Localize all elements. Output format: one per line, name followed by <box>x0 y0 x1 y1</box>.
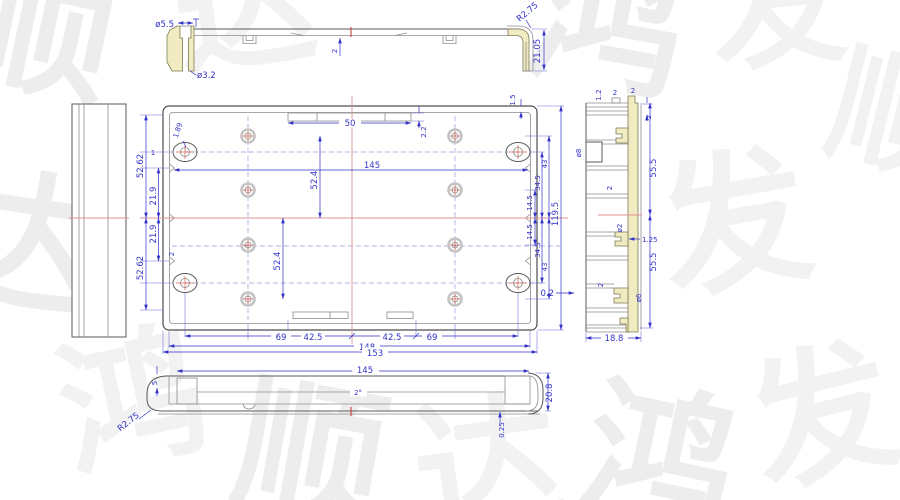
dim-42-5-right: 42.5 <box>383 333 402 343</box>
dim-r2-75-bottom: R2.75 <box>116 411 142 434</box>
right-section-view: 1.2 2 2 2 ø8 2 55.5 ø2 1.25 55.5 2 ø6 18… <box>575 87 659 344</box>
dim-34-5-upper: 34.5 <box>534 175 542 191</box>
dim-tab-2c: 2 <box>645 115 653 119</box>
dim-52-62-lower: 52.62 <box>136 256 146 280</box>
boss-hole <box>449 293 462 306</box>
dim-21-9-lower: 21.9 <box>149 225 159 244</box>
dim-69-left: 69 <box>276 333 287 343</box>
cad-drawing: ø5.5 ø3.2 2 R2.75 21.05 <box>0 0 900 500</box>
boss-hole <box>449 184 462 197</box>
dim-43-lower: 43 <box>541 263 549 272</box>
dim-18-8: 18.8 <box>605 334 624 344</box>
dim-bottom-145: 145 <box>357 366 373 376</box>
main-plan-view: 50 2.2 1.5 145 52.4 52.4 52.62 52.62 21.… <box>136 94 574 359</box>
corner-hole <box>173 274 197 293</box>
dim-119-5: 119.5 <box>551 202 561 226</box>
dim-offset-1: 1 <box>151 149 155 157</box>
boss-hole <box>242 184 255 197</box>
dim-r2-75-top: R2.75 <box>515 1 540 25</box>
dim-phi2: ø2 <box>616 224 624 233</box>
dim-0-2: 0.2 <box>540 289 554 299</box>
dim-phi8: ø8 <box>575 149 583 158</box>
dim-43-upper: 43 <box>541 160 549 169</box>
dim-1-89: 1.89 <box>172 122 184 139</box>
dim-notch-2: 2 <box>168 252 176 256</box>
dim-phi5-5: ø5.5 <box>155 20 174 30</box>
dim-tab-2a: 2 <box>613 89 617 97</box>
dim-52-62-upper: 52.62 <box>136 154 146 178</box>
dim-phi6: ø6 <box>635 293 643 302</box>
boss-hole <box>449 239 462 252</box>
dim-52-4-lower: 52.4 <box>273 252 283 271</box>
dim-thickness-2: 2 <box>331 49 339 53</box>
dim-55-5-lower: 55.5 <box>649 253 659 272</box>
dim-width-145: 145 <box>364 161 380 171</box>
boss-hole <box>242 130 255 143</box>
dim-14-5-upper: 14.5 <box>526 195 534 211</box>
dim-14-5-lower: 14.5 <box>526 224 534 240</box>
corner-hole <box>506 143 530 162</box>
dim-draft-angle: 2° <box>354 389 362 397</box>
dim-phi3-2: ø3.2 <box>197 71 216 81</box>
dim-42-5-left: 42.5 <box>304 333 323 343</box>
dim-69-right: 69 <box>427 333 438 343</box>
dim-21-9-upper: 21.9 <box>149 187 159 206</box>
corner-hole <box>506 274 530 293</box>
cad-drawing-page: 顺 达 鸿 发 顺 达 发 鸿 顺 达 鸿 发 <box>0 0 900 500</box>
boss-hole <box>449 130 462 143</box>
dim-20-8: 20.8 <box>545 384 555 403</box>
dim-34-5-lower: 34.5 <box>534 242 542 258</box>
dim-tab-2b: 2 <box>631 87 635 95</box>
dim-153: 153 <box>367 349 383 359</box>
dim-rib-2a: 2 <box>606 186 614 190</box>
bottom-section-view: 145 5 2° R2.75 0.25 20.8 <box>116 366 555 438</box>
dim-0-25: 0.25 <box>498 422 506 438</box>
dim-21-05: 21.05 <box>533 39 543 63</box>
dim-slot-50: 50 <box>345 119 356 129</box>
dim-rib-2b: 2 <box>597 283 605 287</box>
dim-55-5-upper: 55.5 <box>649 159 659 178</box>
dim-bottom-5: 5 <box>151 381 159 385</box>
left-side-view <box>69 104 129 337</box>
dim-slot-2-2: 2.2 <box>420 126 428 137</box>
dim-1-2: 1.2 <box>595 89 603 100</box>
dim-wall-1-5: 1.5 <box>509 94 517 105</box>
top-section-view: ø5.5 ø3.2 2 R2.75 21.05 <box>155 1 547 81</box>
dim-52-4-upper: 52.4 <box>310 171 320 190</box>
boss-hole <box>242 239 255 252</box>
boss-hole <box>242 293 255 306</box>
